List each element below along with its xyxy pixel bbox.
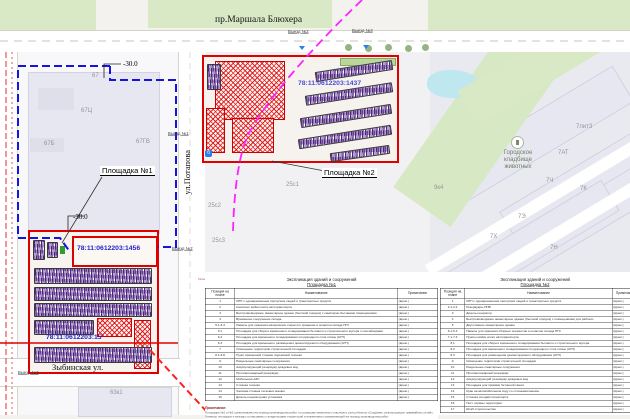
table-cell: (врем.) <box>612 341 630 347</box>
table-cell: Площадка для сбора и временного складиро… <box>235 329 398 335</box>
table-cell: (врем.) <box>397 341 437 347</box>
table-row: 11Противопожарный резервуар(врем.) <box>441 371 630 377</box>
table-cell: (врем.) <box>397 347 437 353</box>
table-row: 12Мобильная АЗС(врем.) <box>206 377 438 383</box>
table-cell: (врем.) <box>612 311 630 317</box>
table-cell: (врем.) <box>612 401 630 407</box>
table-cell: (врем.) <box>612 359 630 365</box>
table-cell: Стоянка техники <box>235 383 398 389</box>
table-cell: Противопожарный резервуар <box>235 371 398 377</box>
tree-icon <box>405 45 412 52</box>
site2-parking-row <box>207 64 221 90</box>
table-row: 3Дизель-генератор(врем.) <box>441 311 630 317</box>
table-cell: Мобильная АЗС <box>235 377 398 383</box>
table-cell: (врем.) <box>612 347 630 353</box>
table-cell: 9 <box>206 359 235 365</box>
table-cell: Комплекс мойки колёс автотранспорта <box>235 305 398 311</box>
site1-parking-row <box>34 320 94 335</box>
table-cell: 1 <box>206 299 235 305</box>
table-row: 13Площадка для приёмки бетонной смеси(вр… <box>441 383 630 389</box>
exit-label-3-bottom: Выезд №3 <box>18 370 39 375</box>
site2-building-hatch <box>232 118 274 153</box>
table-row: 2Комплекс мойки колёс автотранспорта(вре… <box>206 305 438 311</box>
table-cell: 2.1-2.2 <box>441 305 465 311</box>
site2-building-hatch <box>206 108 225 153</box>
site1-parking-row <box>47 242 58 258</box>
table-row: 17Штаб строительства(врем.) <box>441 407 630 413</box>
table-cell: 3 <box>206 311 235 317</box>
table-cell: 8.1-8.8 <box>206 353 235 359</box>
table-cell: (врем.) <box>612 317 630 323</box>
table-cell: 6.3 <box>206 341 235 347</box>
building-label: 7Н <box>550 245 558 251</box>
table-cell: (врем.) <box>612 407 630 413</box>
table-row: 10Аккумулирующий резервуар дождевых вод(… <box>206 365 438 371</box>
table-cell: Противопожарный резервуар <box>465 371 612 377</box>
table-cell: 8.3 <box>441 353 465 359</box>
table-cell: (врем.) <box>612 395 630 401</box>
exit-label-2-top: Выезд №2 <box>288 29 309 34</box>
table-row: 7.1-7.3Пункты мойки колёс автотранспорта… <box>441 335 630 341</box>
table-cell: Наименование <box>235 289 398 299</box>
site-plan-screenshot: { "colors": { "site_outline": "#e10000",… <box>0 0 630 415</box>
building-label: 67Ц <box>81 108 92 114</box>
road-blyukhera <box>0 30 630 54</box>
tree-icon <box>345 44 352 51</box>
table-cell: Площадка для временного складирования пл… <box>235 335 398 341</box>
table-row: 3Быстровозводимое инвентарное здание (бы… <box>206 311 438 317</box>
table-subtitle: Площадка №1 <box>205 282 438 287</box>
explication-table-2: Экспликация зданий и сооружений Площадка… <box>440 277 630 413</box>
table-cell: (врем.) <box>612 365 630 371</box>
green-area <box>428 0 630 30</box>
table-row: 6.1-6.3Навесы для хранения сборных элеме… <box>441 329 630 335</box>
table-cell: Примечание <box>612 289 630 299</box>
table-cell: 11 <box>206 371 235 377</box>
table-cell: 16 <box>441 401 465 407</box>
cemetery-label: Городское кладбище животных <box>488 150 548 171</box>
site2-label: Площадка №2 <box>322 168 377 178</box>
exit-arrow-icon <box>363 45 369 49</box>
site1-parking-row <box>34 303 152 317</box>
table-cell: Площадка для сбора и временного складиро… <box>465 341 612 347</box>
site1-green-marker <box>60 246 65 254</box>
table-cell: Аккумулирующий резервуар дождевых вод <box>235 365 398 371</box>
tree-icon <box>385 44 392 51</box>
table-cell: КПП с одновременным пропуском людей и тр… <box>465 299 612 305</box>
site1-parking-row <box>34 347 152 363</box>
building-label: 7Х <box>490 234 497 240</box>
table-cell: (врем.) <box>397 365 437 371</box>
table-cell: (врем.) <box>397 377 437 383</box>
table-row: 8.1Площадка для сбора и временного склад… <box>441 341 630 347</box>
street-label-blyukhera: пр.Маршала Блюхера <box>215 15 302 25</box>
cemetery-line: Городское <box>488 150 548 157</box>
table-cell: Двухэтажное инвентарное здание <box>465 323 612 329</box>
building-label: 67 <box>92 73 99 79</box>
building-label: 67Б <box>44 141 55 147</box>
table-row: 11Противопожарный резервуар(врем.) <box>206 371 438 377</box>
table-cell: (врем.) <box>612 305 630 311</box>
table-subtitle: Площадка №2 <box>440 282 630 287</box>
table-cell: (врем.) <box>397 323 437 329</box>
table-row: 8.1-8.8Пункт временной стоянки подъёмной… <box>206 353 438 359</box>
table-row: 6.3Площадка для временного размещения де… <box>206 341 438 347</box>
street-label-zybinskaya: Зыбинская ул. <box>52 362 103 372</box>
building-label: 25с3 <box>212 238 225 244</box>
exit-arrow-icon <box>299 46 305 50</box>
site1-parking-row <box>34 287 152 301</box>
building-label: 7лит3 <box>576 124 592 130</box>
table-cell: Наименование <box>465 289 612 299</box>
table-cell: (врем.) <box>397 305 437 311</box>
site2-building-hatch <box>215 61 285 120</box>
table-cell: (врем.) <box>397 311 437 317</box>
cadastral-number-3: 78:11:0612203:1437 <box>298 80 361 87</box>
table-cell: (врем.) <box>397 335 437 341</box>
exit-label-1-mid: Выезд №1 <box>168 131 189 136</box>
exit-label-2-mid: Выезд №2 <box>172 246 193 251</box>
table-cell: 6.2 <box>206 335 235 341</box>
table-row: 4Быстровозводимое инвентарное здание (бы… <box>441 317 630 323</box>
cadastral-number-2: 78:11:0612203:15 <box>46 334 102 341</box>
table-cell: 8.2 <box>441 347 465 353</box>
tree-icon <box>422 44 429 51</box>
table-row: 6.2Площадка для временного складирования… <box>206 335 438 341</box>
table-row: 1КПП с одновременным пропуском людей и т… <box>206 299 438 305</box>
building-label: 25с1 <box>286 182 299 188</box>
table-cell: Часовая стоянка легковых машин <box>235 389 398 395</box>
table-row: 9Освещение территории строительной площа… <box>441 359 630 365</box>
building-label: 63к1 <box>110 390 123 396</box>
table-cell: Навесы для хранения материалов открытого… <box>235 323 398 329</box>
table-row: 5Двухэтажное инвентарное здание(врем.) <box>441 323 630 329</box>
table-cell: (врем.) <box>612 329 630 335</box>
table-row: 8.3Площадка для размещения демонтируемог… <box>441 353 630 359</box>
table-cell: (врем.) <box>397 383 437 389</box>
site1-label: Площадка №1 <box>100 166 155 176</box>
table-cell: 10 <box>441 365 465 371</box>
building-label: 7Ч <box>546 178 553 184</box>
building-label: 9к4 <box>434 185 443 191</box>
table-cell: (врем.) <box>397 359 437 365</box>
table-row: 13Стоянка техники(врем.) <box>206 383 438 389</box>
table-cell: (врем.) <box>612 323 630 329</box>
table-cell: Раздельные санитарные сооружения <box>235 359 398 365</box>
table-cell: Быстровозводимое инвентарное здание (быт… <box>235 311 398 317</box>
table-cell: Позиция на плане <box>441 289 465 299</box>
table-cell: Дизель-генераторная установка <box>235 395 398 401</box>
table-row: 12Аккумулирующий резервуар дождевых вод(… <box>441 377 630 383</box>
table-cell: 3 <box>441 311 465 317</box>
table-row: Позиция на планеНаименованиеПримечание <box>206 289 438 299</box>
table-row: 6.1Площадка для сбора и временного склад… <box>206 329 438 335</box>
table-cell: Площадка для приёмки бетонной смеси <box>465 383 612 389</box>
building-label: 7К <box>580 186 587 192</box>
site1-building-hatch <box>97 318 132 337</box>
table-cell: (врем.) <box>612 377 630 383</box>
table-cell: 17 <box>441 407 465 413</box>
table-cell: Площадка для временного складирования пл… <box>465 347 612 353</box>
table-cell: Аккумулирующий резервуар дождевых вод <box>465 377 612 383</box>
table-cell: (врем.) <box>397 329 437 335</box>
table-cell: Пост охраны территории <box>465 401 612 407</box>
table-cell: 13 <box>206 383 235 389</box>
footnote-line: Границы площадок и выезды согласованы с … <box>205 415 437 419</box>
table-cell: 9 <box>441 359 465 365</box>
table-row: Позиция на планеНаименованиеПримечание <box>441 289 630 299</box>
table-cell: (врем.) <box>397 353 437 359</box>
table-row: 10Раздельные санитарные сооружения(врем.… <box>441 365 630 371</box>
table-cell: Резервуары ППВ <box>465 305 612 311</box>
table-cell: 8.1 <box>441 341 465 347</box>
table-cell: Дизель-генератор <box>465 311 612 317</box>
table-cell: 12 <box>441 377 465 383</box>
street-label-potapova: ул.Потапова <box>182 150 192 194</box>
transit-stop-icon: б <box>205 150 212 157</box>
table-row: 9Раздельные санитарные сооружения(врем.) <box>206 359 438 365</box>
table-cell: 7 <box>206 347 235 353</box>
table-cell: 5 <box>441 323 465 329</box>
table-row: 1КПП с одновременным пропуском людей и т… <box>441 299 630 305</box>
table-cell: 6.1 <box>206 329 235 335</box>
offset-label-top: -30.0 <box>123 60 138 68</box>
table-cell: 15 <box>206 395 235 401</box>
table-cell: 5.1-5.4 <box>206 323 235 329</box>
table-cell: (врем.) <box>397 299 437 305</box>
table-cell: Раздельные санитарные сооружения <box>465 365 612 371</box>
table-row: 8.2Площадка для временного складирования… <box>441 347 630 353</box>
table-cell: Временное сооружение склада <box>235 317 398 323</box>
table-row: 14Часовая стоянка легковых машин(врем.) <box>206 389 438 395</box>
table-cell: (врем.) <box>397 389 437 395</box>
table-cell: 14 <box>206 389 235 395</box>
table-cell: 12 <box>206 377 235 383</box>
exit-label-3-top: Выезд №3 <box>352 28 373 33</box>
cemetery-line: кладбище <box>488 157 548 164</box>
table-cell: Позиция на плане <box>206 289 235 299</box>
footnote-label: Примечание: <box>205 407 226 411</box>
table-cell: (врем.) <box>612 383 630 389</box>
green-area <box>0 0 96 30</box>
building-label: 67ГВ <box>136 139 150 145</box>
table-cell: Пункт временной стоянки подъёмной техник… <box>235 353 398 359</box>
table-row: 5.1-5.4Навесы для хранения материалов от… <box>206 323 438 329</box>
table-cell: (врем.) <box>612 389 630 395</box>
building-label: 7АТ <box>558 150 569 156</box>
site1-parking-row <box>34 268 152 284</box>
table-row: 2.1-2.2Резервуары ППВ(врем.) <box>441 305 630 311</box>
table-cell: (врем.) <box>397 371 437 377</box>
table-cell: 14 <box>441 389 465 395</box>
building-inner <box>38 88 74 110</box>
table-cell: 6.1-6.3 <box>441 329 465 335</box>
table-cell: (врем.) <box>397 395 437 401</box>
cemetery-line: животных <box>488 164 548 171</box>
table-cell: Навесы для хранения сборных элементов и … <box>465 329 612 335</box>
building-63k1 <box>78 387 172 417</box>
table-cell: Штаб строительства <box>465 407 612 413</box>
table-row: 14Кран на автомобильном ходу со стоянкам… <box>441 389 630 395</box>
table-row: 7Освещение территории строительной площа… <box>206 347 438 353</box>
table-cell: Примечание <box>397 289 437 299</box>
explication-table-1: Экспликация зданий и сооружений Площадка… <box>205 277 438 419</box>
table-cell: Кран на автомобильном ходу со стоянками … <box>465 389 612 395</box>
table-cell: Стоянка спецавтотранспорта <box>465 395 612 401</box>
table-cell: (врем.) <box>612 353 630 359</box>
table-cell: Площадка для размещения демонтируемого о… <box>465 353 612 359</box>
table-cell: 10 <box>206 365 235 371</box>
table-cell: Площадка для временного размещения демон… <box>235 341 398 347</box>
table-cell: Пункты мойки колёс автотранспорта <box>465 335 612 341</box>
table-cell: Быстровозводимое инвентарное здание (быт… <box>465 317 612 323</box>
table-cell: Освещение территории строительной площад… <box>465 359 612 365</box>
table-cell: 13 <box>441 383 465 389</box>
table-cell: (врем.) <box>612 371 630 377</box>
building-label: 7Э <box>518 214 526 220</box>
site1-parking-row <box>33 240 45 260</box>
table-cell: (врем.) <box>612 299 630 305</box>
table-cell: 15 <box>441 395 465 401</box>
table-cell: 7.1-7.3 <box>441 335 465 341</box>
cadastral-number-1: 78:11:0612203:1456 <box>77 245 140 252</box>
cemetery-icon <box>511 136 524 149</box>
table-cell: 4 <box>441 317 465 323</box>
table-cell: (врем.) <box>397 317 437 323</box>
offset-label-bottom: -30.0 <box>73 213 88 221</box>
table-cell: 4 <box>206 317 235 323</box>
table-cell: 1 <box>441 299 465 305</box>
table-cell: 2 <box>206 305 235 311</box>
table-row: 4Временное сооружение склада(врем.) <box>206 317 438 323</box>
table-cell: 11 <box>441 371 465 377</box>
table-row: 16Пост охраны территории(врем.) <box>441 401 630 407</box>
table-cell: Освещение территории строительной площад… <box>235 347 398 353</box>
table-cell: КПП с одновременным пропуском людей и тр… <box>235 299 398 305</box>
table-row: 15Стоянка спецавтотранспорта(врем.) <box>441 395 630 401</box>
table-cell: (врем.) <box>612 335 630 341</box>
building-label: 25с2 <box>208 203 221 209</box>
table-row: 15Дизель-генераторная установка(врем.) <box>206 395 438 401</box>
